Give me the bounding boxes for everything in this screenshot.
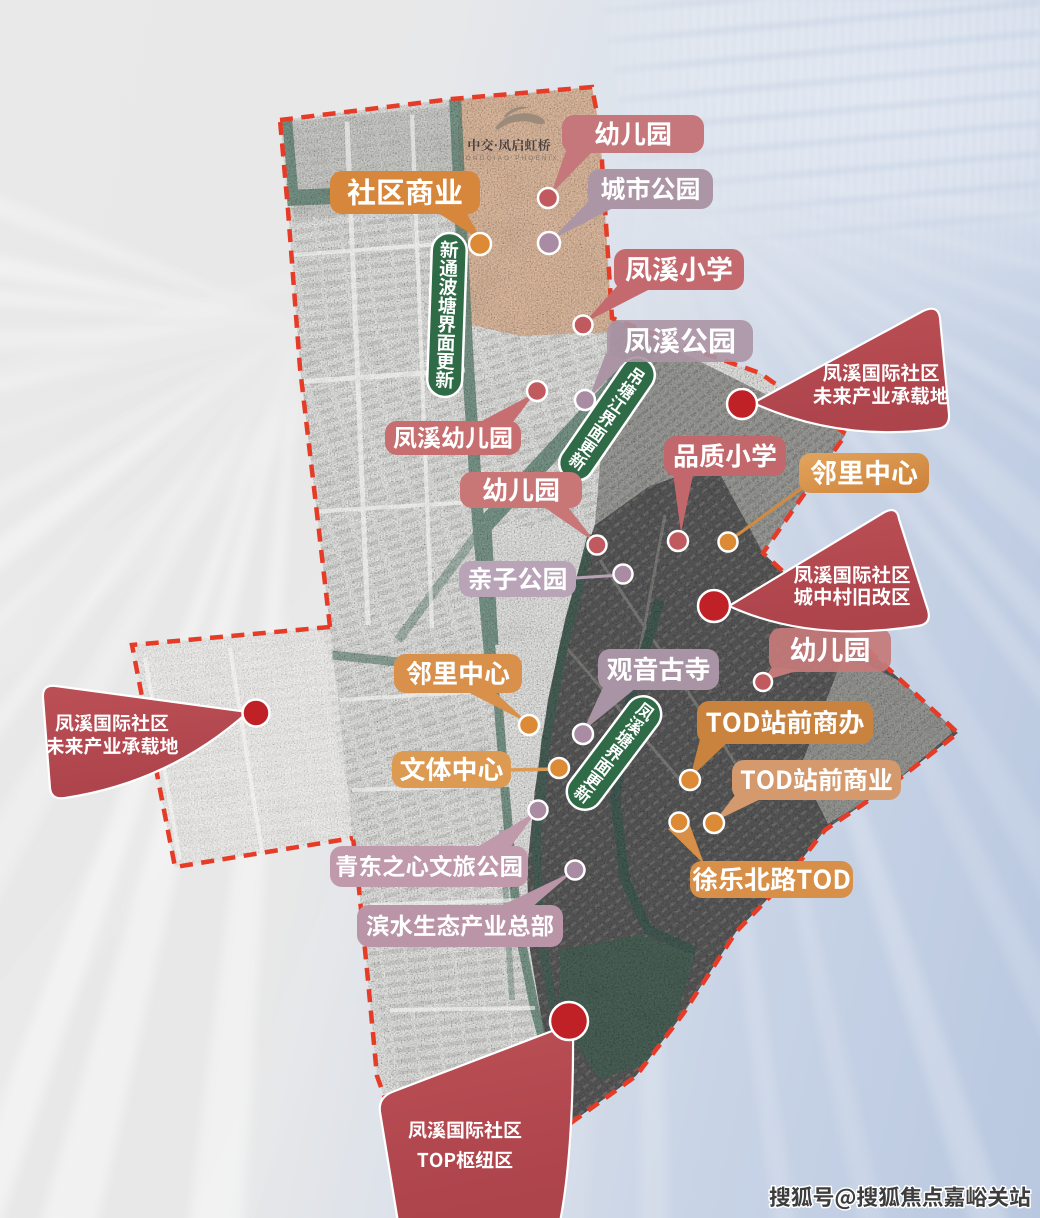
- svg-text:HONGQIAO PHOENIX: HONGQIAO PHOENIX: [459, 155, 559, 162]
